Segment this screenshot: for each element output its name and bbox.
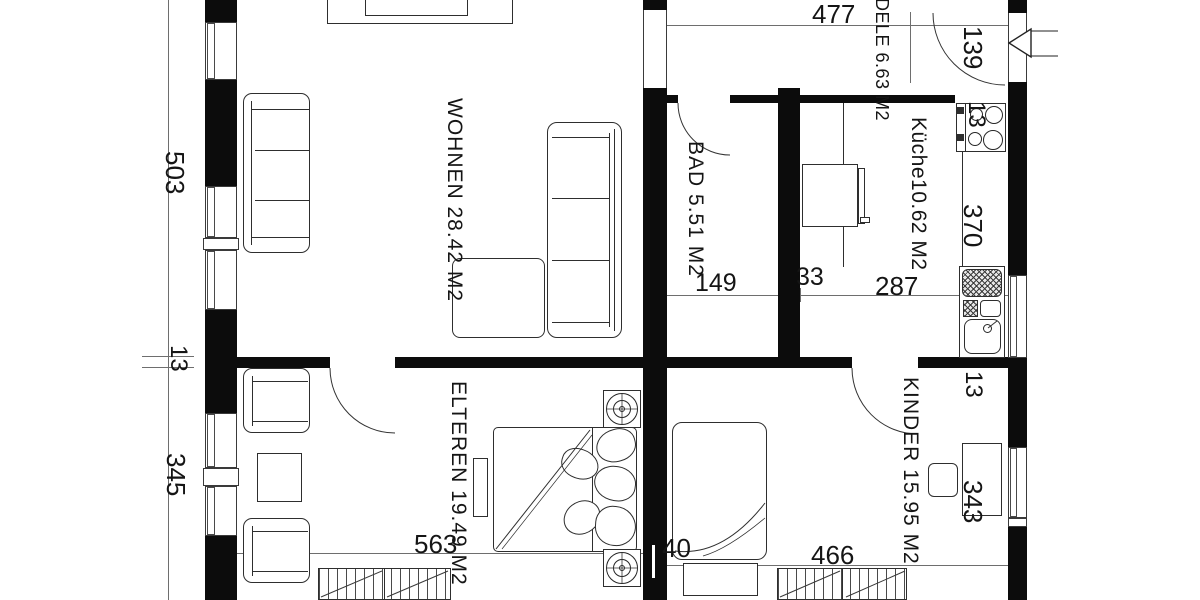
window-left-sill-1 (203, 238, 239, 250)
lamp-top-dot (619, 406, 625, 412)
window-left-3-glazing (207, 251, 215, 309)
room-label-bad: BAD 5.51 M2 (685, 141, 706, 277)
floor-plan: WOHNEN 28.42 M2 BAD 5.51 M2 Küche10.62 M… (0, 0, 1200, 600)
armchair-1-arm-bottom (252, 421, 308, 422)
window-right-1-glazing (1010, 276, 1017, 357)
armchair-2-arm-top (252, 531, 308, 532)
sink-drainer (962, 269, 1002, 297)
wall-mid-1 (237, 357, 330, 368)
wall-bad-top-stub (667, 95, 678, 103)
dim-33: 33 (796, 265, 824, 290)
dim-563: 563 (414, 531, 457, 557)
window-right-sill (1008, 518, 1027, 527)
sofa-large-armrest-bottom (552, 322, 609, 323)
wall-kueche-top (730, 95, 955, 103)
sofa-large-back-2 (614, 129, 615, 331)
desk-chair (928, 463, 958, 497)
dim-503: 503 (162, 151, 188, 194)
wall-mid-4 (918, 357, 1008, 368)
dim-370: 370 (960, 204, 986, 247)
armchair-2-back (252, 526, 253, 576)
wall-center-top (643, 0, 667, 10)
sink-soap-tray (963, 300, 978, 317)
kinder-nightstand (683, 563, 758, 596)
armchair-1-back (252, 376, 253, 426)
double-bed-head-line (592, 428, 593, 551)
dim-line-left-vertical (168, 0, 169, 600)
fridge-handle (860, 217, 870, 223)
wall-right-1 (1008, 0, 1027, 13)
sink-bowl-large (964, 319, 1001, 354)
window-right-2-glazing (1010, 448, 1017, 517)
dim-40: 40 (662, 535, 691, 561)
fridge-door (858, 168, 865, 224)
sink-bowl-small (980, 300, 1001, 317)
wall-center-main (643, 88, 667, 600)
room-label-kueche: Küche10.62 M2 (908, 117, 929, 271)
wall-mid-3 (667, 357, 852, 368)
sofa-small-armrest-top (251, 109, 309, 110)
tv-board-inner (365, 0, 468, 16)
counter-line-lower (843, 227, 844, 267)
window-left-5-glazing (207, 487, 215, 535)
room-label-kinder: KINDER 15.95 M2 (900, 377, 921, 565)
sofa-small-back (251, 101, 252, 245)
room-label-diele: DELE 6.63 M2 (873, 0, 891, 121)
side-table (257, 453, 302, 502)
wardrobe-elteren-divider (384, 568, 385, 600)
bed-bench (473, 458, 488, 517)
armchair-2 (243, 518, 310, 583)
sofa-large (547, 122, 622, 338)
entry-opening (1008, 13, 1027, 82)
dim-466: 466 (811, 542, 854, 568)
dim-287: 287 (875, 273, 918, 299)
sink-faucet (983, 324, 992, 333)
sofa-large-back-1 (609, 133, 610, 327)
wall-mid-2 (395, 357, 643, 368)
dim-13-stove: 13 (964, 101, 988, 128)
dim-139: 139 (960, 26, 986, 69)
wohnen-diele-opening (643, 10, 667, 88)
dim-477: 477 (812, 1, 855, 27)
sofa-small (243, 93, 310, 253)
armchair-1 (243, 368, 310, 433)
armchair-2-arm-bottom (252, 571, 308, 572)
burner-small-2 (968, 132, 982, 146)
wall-center-joint (652, 545, 655, 578)
wall-left-4 (205, 536, 237, 600)
stove-knob-2 (957, 134, 964, 141)
counter-line-upper (843, 103, 844, 165)
sofa-small-cushion-2 (255, 200, 309, 201)
sofa-large-cushion-2 (552, 260, 609, 261)
window-left-sill-2 (203, 468, 239, 486)
dim-345: 345 (163, 453, 189, 496)
wall-bad-kueche (778, 88, 800, 368)
dim-13-left: 13 (166, 345, 190, 372)
dim-13-kinder: 13 (961, 371, 985, 398)
wall-left-3 (205, 310, 237, 413)
sofa-large-cushion-1 (552, 198, 609, 199)
wall-right-3 (1008, 358, 1027, 447)
wall-right-2 (1008, 82, 1027, 275)
wardrobe-kinder-divider (842, 568, 843, 600)
window-left-2-glazing (207, 187, 215, 237)
armchair-1-arm-top (252, 381, 308, 382)
window-left-1-glazing (207, 23, 215, 79)
dim-ext-entry (910, 12, 911, 83)
dim-343: 343 (960, 480, 986, 523)
sofa-large-armrest-top (552, 137, 609, 138)
lamp-bottom-dot (619, 565, 625, 571)
wall-left-1 (205, 0, 237, 22)
fridge (802, 164, 858, 227)
window-left-4-glazing (207, 414, 215, 467)
sofa-small-cushion-1 (255, 150, 309, 151)
elteren-door-arc (330, 368, 395, 433)
wall-right-4 (1008, 527, 1027, 600)
burner-large-2 (983, 130, 1003, 150)
room-label-wohnen: WOHNEN 28.42 M2 (444, 98, 465, 302)
sofa-small-armrest-bottom (251, 237, 309, 238)
wall-left-2 (205, 80, 237, 186)
dim-149: 149 (695, 271, 737, 296)
